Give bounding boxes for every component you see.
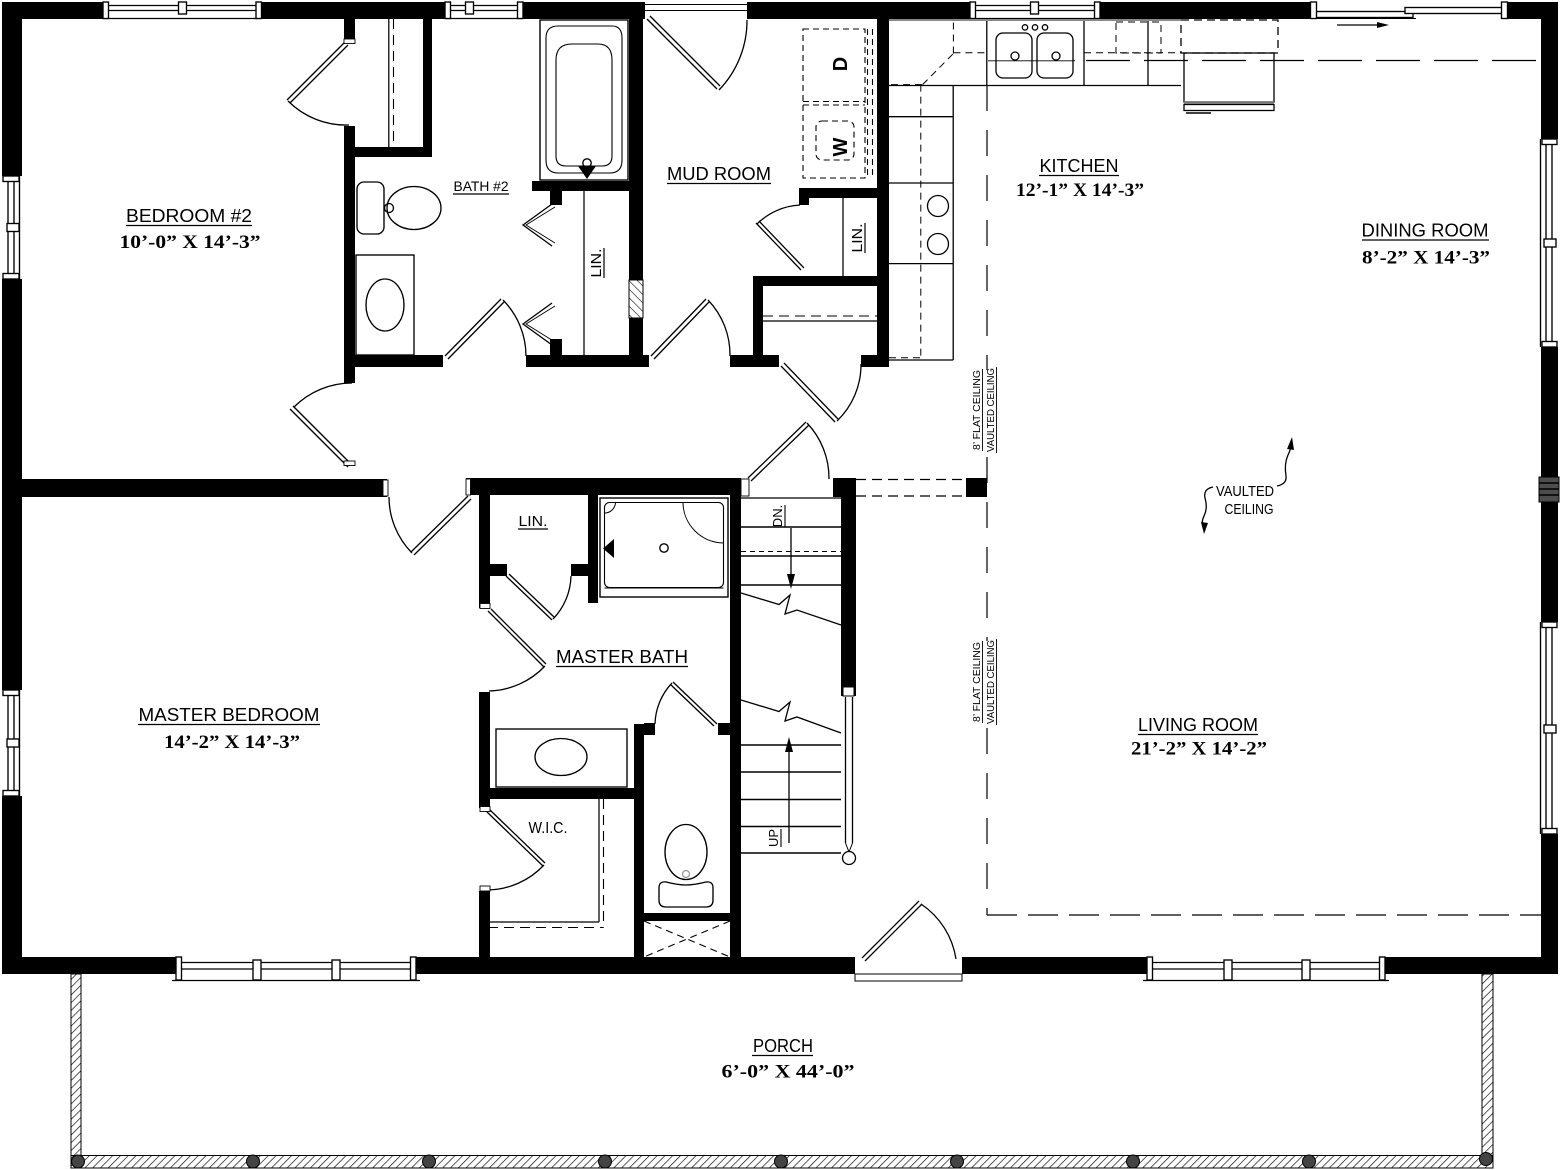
svg-text:8’ FLAT CEILING: 8’ FLAT CEILING — [971, 370, 983, 450]
svg-text:UP: UP — [766, 829, 781, 847]
svg-text:6’-0” X 44’-0”: 6’-0” X 44’-0” — [722, 1062, 855, 1083]
svg-text:W.I.C.: W.I.C. — [529, 820, 568, 837]
svg-text:LIVING ROOM: LIVING ROOM — [1138, 714, 1258, 735]
svg-text:CEILING: CEILING — [1225, 502, 1274, 518]
svg-text:12’-1” X 14’-3”: 12’-1” X 14’-3” — [1016, 180, 1144, 201]
svg-text:KITCHEN: KITCHEN — [1040, 155, 1119, 176]
svg-text:W: W — [830, 137, 852, 156]
svg-text:LIN.: LIN. — [850, 224, 866, 253]
svg-text:14’-2” X 14’-3”: 14’-2” X 14’-3” — [164, 732, 300, 753]
svg-text:10’-0” X 14’-3”: 10’-0” X 14’-3” — [120, 232, 261, 253]
svg-text:MASTER BEDROOM: MASTER BEDROOM — [139, 704, 320, 725]
svg-text:8’ FLAT CEILING: 8’ FLAT CEILING — [971, 642, 983, 722]
svg-text:VAULTED CEILING: VAULTED CEILING — [985, 368, 997, 452]
svg-text:D: D — [830, 57, 852, 71]
svg-text:PORCH: PORCH — [753, 1035, 813, 1056]
svg-text:MASTER BATH: MASTER BATH — [556, 646, 688, 667]
svg-text:DN.: DN. — [770, 505, 785, 527]
svg-text:BATH #2: BATH #2 — [454, 178, 509, 194]
svg-text:MUD ROOM: MUD ROOM — [667, 163, 771, 184]
svg-text:LIN.: LIN. — [519, 514, 548, 530]
svg-text:8’-2” X 14’-3”: 8’-2” X 14’-3” — [1362, 248, 1490, 269]
svg-text:BEDROOM #2: BEDROOM #2 — [126, 205, 252, 226]
svg-text:21’-2” X 14’-2”: 21’-2” X 14’-2” — [1131, 739, 1267, 760]
svg-text:VAULTED: VAULTED — [1216, 484, 1274, 500]
svg-text:LIN.: LIN. — [589, 249, 605, 278]
svg-text:VAULTED CEILING: VAULTED CEILING — [985, 640, 997, 724]
svg-text:DINING ROOM: DINING ROOM — [1362, 220, 1489, 241]
